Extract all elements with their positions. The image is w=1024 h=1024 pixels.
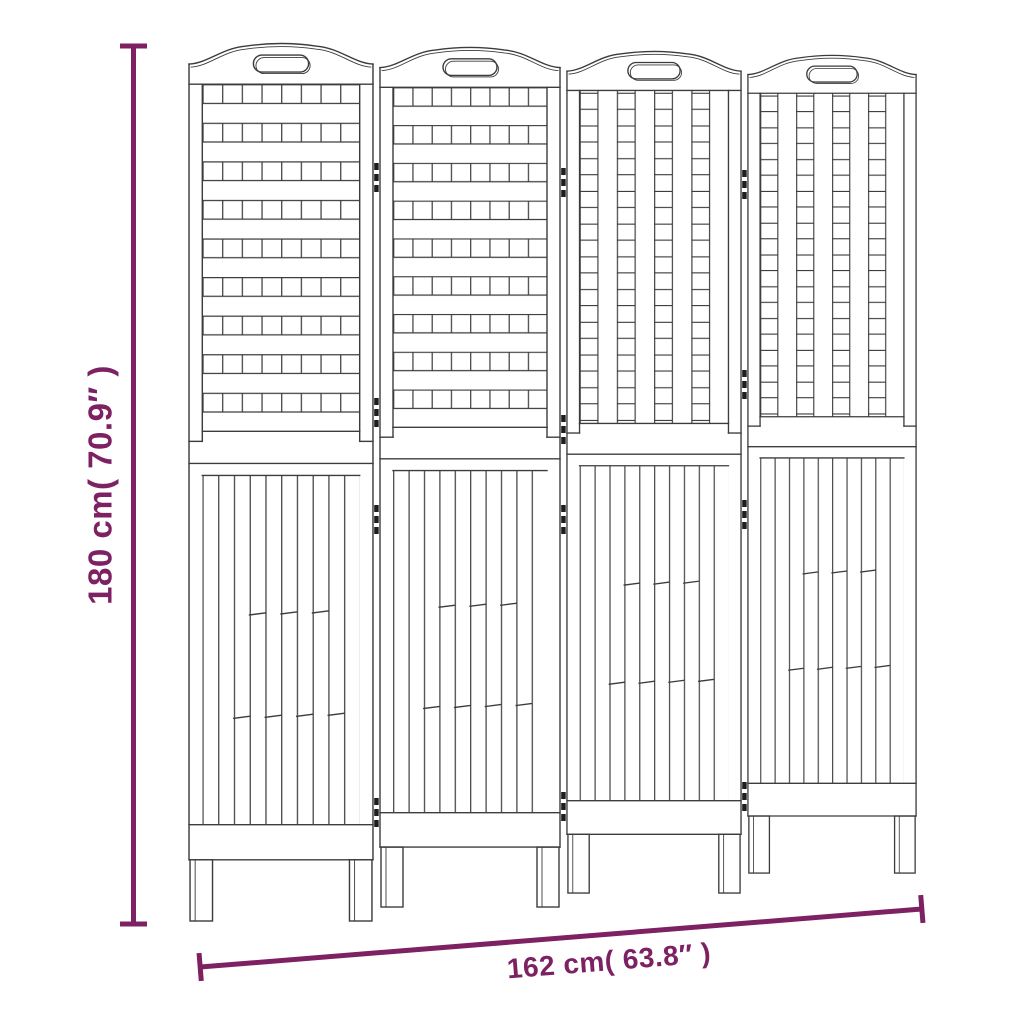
room-divider-drawing: 180 cm( 70.9″ ) 162 cm( 63.8″ ) bbox=[0, 0, 1024, 1024]
panel-1 bbox=[189, 44, 373, 921]
panel-4 bbox=[748, 55, 916, 873]
width-dimension-cap-left bbox=[199, 953, 201, 981]
product-dimension-diagram: 180 cm( 70.9″ ) 162 cm( 63.8″ ) bbox=[0, 0, 1024, 1024]
hinge-icon bbox=[561, 792, 566, 821]
hinge-icon bbox=[374, 163, 379, 192]
width-dimension-cap-right bbox=[921, 895, 923, 923]
joint-3-hinges bbox=[742, 170, 747, 811]
hinge-icon bbox=[374, 505, 379, 534]
hinge-icon bbox=[561, 415, 566, 444]
hinge-icon bbox=[742, 782, 747, 811]
width-dimension-label: 162 cm( 63.8″ ) bbox=[506, 937, 712, 984]
hinge-icon bbox=[561, 505, 566, 534]
height-dimension: 180 cm( 70.9″ ) bbox=[82, 46, 147, 924]
panel-2 bbox=[380, 47, 560, 907]
panel-3 bbox=[567, 51, 741, 893]
hinge-icon bbox=[561, 168, 566, 197]
joint-2-hinges bbox=[561, 168, 566, 821]
hinge-icon bbox=[742, 500, 747, 529]
hinge-icon bbox=[742, 370, 747, 399]
height-dimension-label: 180 cm( 70.9″ ) bbox=[82, 365, 119, 605]
hinge-icon bbox=[374, 798, 379, 827]
joint-1-hinges bbox=[374, 163, 379, 827]
hinge-icon bbox=[374, 398, 379, 427]
hinge-icon bbox=[742, 170, 747, 199]
width-dimension: 162 cm( 63.8″ ) bbox=[199, 895, 925, 1009]
